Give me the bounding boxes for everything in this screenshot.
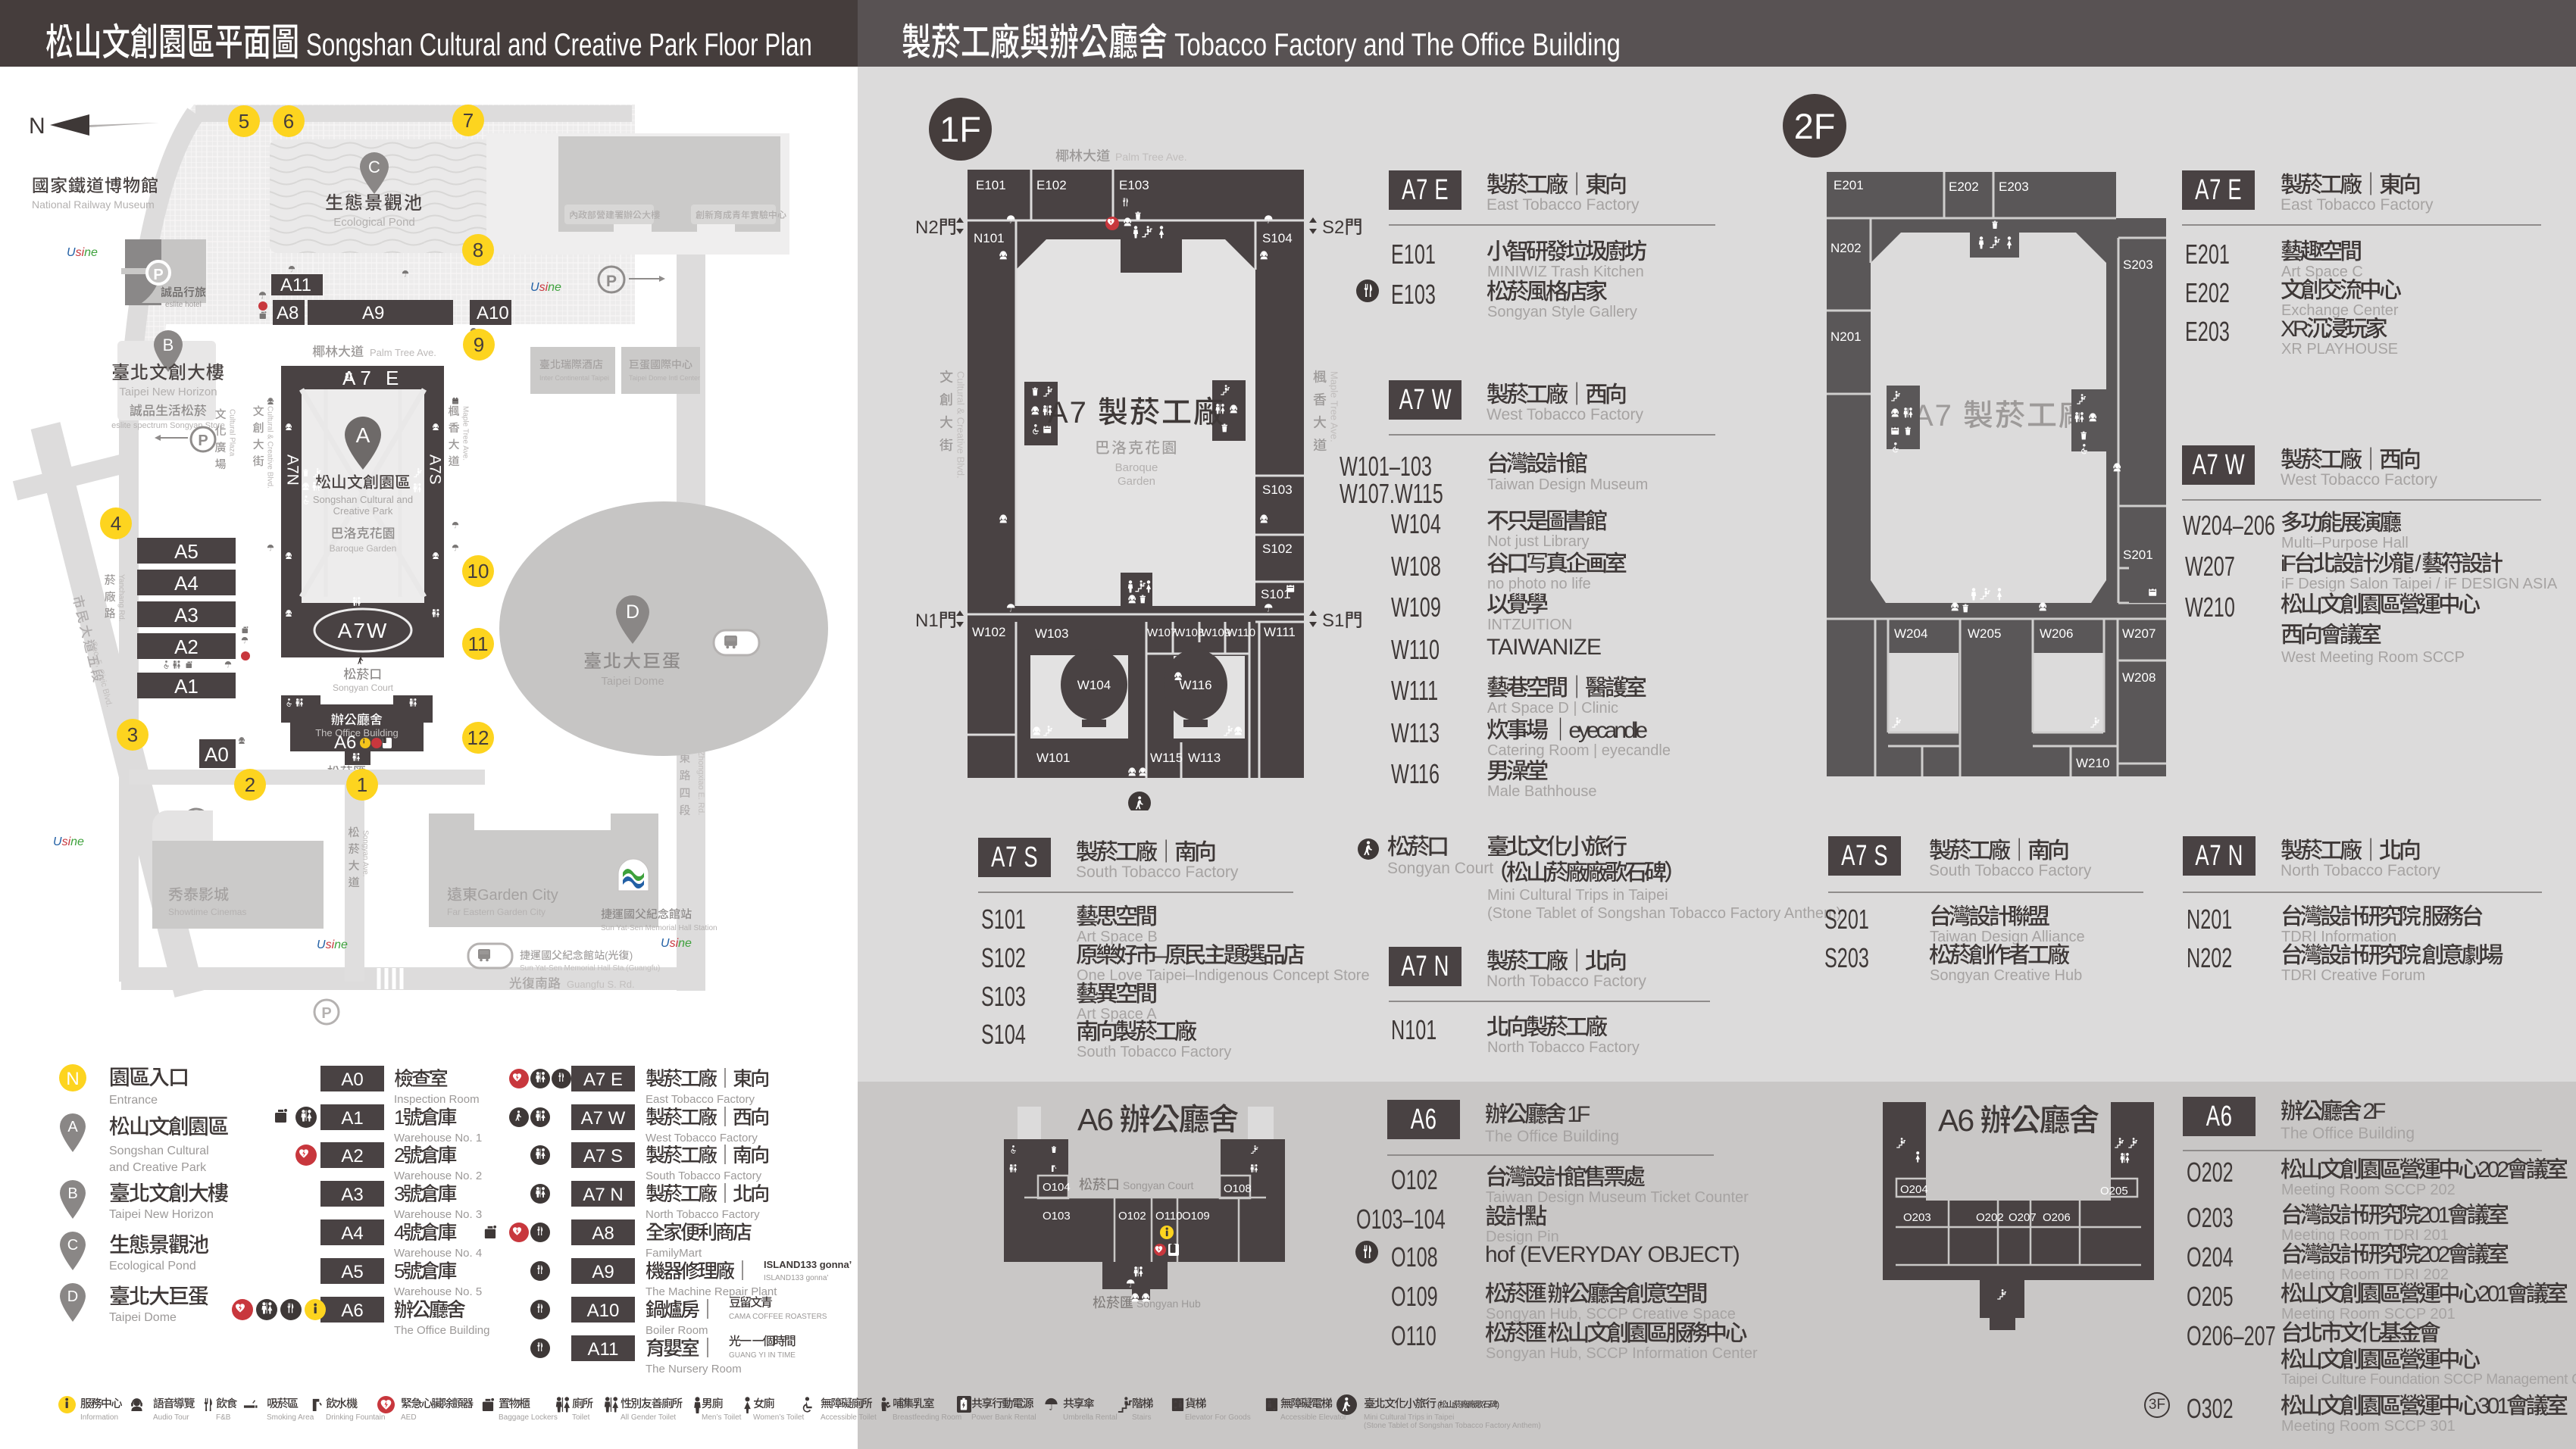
- svg-text:巨蛋國際中心: 巨蛋國際中心: [629, 358, 692, 370]
- svg-text:A11: A11: [588, 1339, 619, 1360]
- svg-text:8: 8: [473, 239, 483, 261]
- svg-text:A7 S: A7 S: [583, 1146, 623, 1166]
- svg-text:4: 4: [111, 512, 121, 535]
- svg-text:East Tobacco Factory: East Tobacco Factory: [646, 1093, 755, 1106]
- svg-text:創新育成青年實驗中心: 創新育成青年實驗中心: [696, 210, 787, 220]
- svg-text:W104: W104: [1077, 678, 1111, 692]
- svg-text:O203: O203: [1903, 1211, 1931, 1224]
- svg-text:W102: W102: [972, 625, 1005, 639]
- svg-text:遠東Garden City: 遠東Garden City: [447, 887, 558, 904]
- svg-text:A0: A0: [341, 1070, 363, 1090]
- svg-text:Warehouse No. 4: Warehouse No. 4: [394, 1247, 482, 1260]
- svg-text:A11: A11: [280, 275, 311, 295]
- svg-text:C: C: [368, 158, 380, 176]
- svg-text:椰林大道: 椰林大道: [1055, 148, 1110, 164]
- svg-text:A7S: A7S: [427, 454, 444, 485]
- svg-text:W111: W111: [1264, 625, 1296, 639]
- svg-text:1號倉庫: 1號倉庫: [394, 1106, 456, 1129]
- svg-text:11: 11: [468, 632, 489, 655]
- svg-text:楓香大道: 楓香大道: [1311, 367, 1327, 457]
- svg-text:P: P: [606, 273, 617, 290]
- svg-text:Ecological Pond: Ecological Pond: [333, 216, 415, 229]
- svg-text:檢查室: 檢查室: [394, 1067, 448, 1090]
- svg-text:Palm Tree Ave.: Palm Tree Ave.: [370, 347, 436, 358]
- svg-text:秀泰影城: 秀泰影城: [168, 887, 229, 904]
- svg-text:4號倉庫: 4號倉庫: [394, 1221, 456, 1244]
- svg-text:GUANG YI IN TIME: GUANG YI IN TIME: [729, 1351, 796, 1360]
- svg-text:D: D: [626, 601, 639, 623]
- svg-text:松菸口: 松菸口: [1079, 1177, 1120, 1192]
- svg-text:S101: S101: [1261, 587, 1291, 601]
- svg-text:捷運國父紀念館站(光復): 捷運國父紀念館站(光復): [520, 949, 633, 961]
- svg-text:Sun Yat-Sen Memorial Hall Stat: Sun Yat-Sen Memorial Hall Station: [601, 924, 717, 932]
- svg-text:Taipei New Horizon: Taipei New Horizon: [119, 386, 217, 398]
- svg-text:巴洛克花園: 巴洛克花園: [331, 526, 395, 541]
- svg-text:P: P: [321, 1005, 331, 1022]
- svg-text:Taipei Dome: Taipei Dome: [601, 675, 664, 688]
- svg-text:園區入口: 園區入口: [109, 1066, 188, 1089]
- svg-text:Sun Yat-Sen Memorial Hall Sta.: Sun Yat-Sen Memorial Hall Sta.(Guangfu): [520, 964, 660, 973]
- svg-text:W206: W206: [2040, 626, 2073, 641]
- svg-text:W207: W207: [2122, 626, 2156, 641]
- svg-text:Usine: Usine: [317, 938, 348, 951]
- svg-text:光一 一個時間: 光一 一個時間: [729, 1335, 795, 1348]
- svg-text:A9: A9: [362, 303, 384, 323]
- svg-text:E203: E203: [1999, 180, 2029, 194]
- svg-text:A1: A1: [174, 675, 199, 698]
- svg-text:W108: W108: [1174, 626, 1204, 639]
- svg-text:O110: O110: [1155, 1210, 1183, 1223]
- svg-text:Maple Tree Ave.: Maple Tree Ave.: [461, 406, 470, 461]
- svg-text:W205: W205: [1968, 626, 2001, 641]
- svg-text:W107: W107: [1147, 626, 1177, 639]
- svg-text:Songyan Ave.: Songyan Ave.: [361, 830, 370, 877]
- svg-text:CAMA COFFEE ROASTERS: CAMA COFFEE ROASTERS: [729, 1313, 827, 1321]
- svg-text:A2: A2: [341, 1146, 363, 1166]
- svg-text:機器修理廠｜: 機器修理廠｜: [646, 1260, 750, 1282]
- svg-text:O108: O108: [1224, 1182, 1252, 1195]
- svg-text:文化廣場: 文化廣場: [214, 406, 227, 473]
- svg-text:W110: W110: [1227, 626, 1255, 639]
- svg-text:Entrance: Entrance: [109, 1094, 158, 1107]
- svg-text:S1門: S1門: [1322, 611, 1362, 631]
- svg-text:國家鐵道博物館: 國家鐵道博物館: [32, 176, 159, 195]
- svg-text:W204: W204: [1894, 626, 1927, 641]
- svg-text:楓香大道: 楓香大道: [447, 403, 460, 470]
- svg-text:鍋爐房｜: 鍋爐房｜: [646, 1298, 715, 1321]
- svg-text:A7 製菸工廠: A7 製菸工廠: [1048, 396, 1225, 429]
- svg-text:and Creative Park: and Creative Park: [109, 1161, 207, 1174]
- svg-text:W210: W210: [2076, 756, 2109, 770]
- svg-text:Usine: Usine: [530, 281, 561, 294]
- svg-text:W113: W113: [1188, 751, 1221, 765]
- svg-text:Baroque: Baroque: [1115, 461, 1158, 474]
- svg-text:製菸工廠｜南向: 製菸工廠｜南向: [646, 1144, 768, 1166]
- svg-text:A4: A4: [174, 572, 199, 595]
- svg-text:松菸大道: 松菸大道: [347, 824, 360, 891]
- svg-text:A3: A3: [174, 604, 199, 626]
- svg-text:South Tobacco Factory: South Tobacco Factory: [646, 1170, 762, 1182]
- svg-text:O104: O104: [1043, 1181, 1071, 1194]
- svg-text:A0: A0: [205, 743, 229, 766]
- svg-text:A10: A10: [477, 303, 509, 323]
- svg-text:Usine: Usine: [53, 835, 84, 848]
- svg-text:臺北文創大樓: 臺北文創大樓: [111, 363, 225, 383]
- svg-text:S201: S201: [2123, 548, 2153, 562]
- svg-text:O103: O103: [1043, 1210, 1071, 1223]
- svg-text:生態景觀池: 生態景觀池: [325, 193, 424, 214]
- svg-text:Songyan Court: Songyan Court: [1123, 1179, 1194, 1191]
- svg-text:松菸匯: 松菸匯: [1093, 1295, 1133, 1310]
- svg-text:Usine: Usine: [661, 937, 692, 950]
- svg-text:Ecological Pond: Ecological Pond: [109, 1260, 196, 1273]
- svg-text:Creative Park: Creative Park: [333, 505, 393, 517]
- svg-text:文創大街: 文創大街: [938, 367, 953, 457]
- svg-text:松山文創園區: 松山文創園區: [109, 1115, 228, 1138]
- svg-text:光復南路: 光復南路: [509, 976, 561, 991]
- svg-text:Inspection Room: Inspection Room: [394, 1093, 480, 1106]
- svg-text:N202: N202: [1830, 241, 1862, 255]
- svg-text:W116: W116: [1179, 678, 1211, 692]
- svg-text:Warehouse No. 3: Warehouse No. 3: [394, 1208, 482, 1221]
- svg-text:N201: N201: [1830, 329, 1862, 344]
- svg-text:A: A: [356, 423, 370, 447]
- svg-text:誠品行旅: 誠品行旅: [161, 286, 206, 299]
- svg-text:Garden: Garden: [1118, 475, 1155, 488]
- svg-text:3: 3: [127, 723, 138, 746]
- svg-text:臺北大巨蛋: 臺北大巨蛋: [583, 651, 682, 672]
- svg-text:A6: A6: [334, 732, 356, 753]
- svg-text:S203: S203: [2123, 258, 2153, 272]
- svg-text:O102: O102: [1118, 1210, 1146, 1223]
- svg-text:C: C: [67, 1237, 78, 1254]
- svg-text:Warehouse No. 1: Warehouse No. 1: [394, 1132, 482, 1145]
- svg-text:全家便利商店: 全家便利商店: [646, 1221, 752, 1244]
- svg-text:12: 12: [467, 726, 489, 749]
- svg-text:E102: E102: [1036, 178, 1067, 192]
- svg-text:A5: A5: [174, 540, 199, 563]
- svg-text:A6: A6: [341, 1301, 363, 1321]
- svg-text:N: N: [66, 1069, 79, 1089]
- svg-text:O207: O207: [2009, 1211, 2037, 1224]
- svg-text:臺北文創大樓: 臺北文創大樓: [109, 1182, 228, 1205]
- svg-text:A3: A3: [341, 1185, 363, 1205]
- svg-text:eslite hotel: eslite hotel: [165, 301, 202, 309]
- svg-text:Cultural Plaza: Cultural Plaza: [228, 409, 236, 457]
- svg-text:Usine: Usine: [67, 246, 98, 259]
- svg-text:West Tobacco Factory: West Tobacco Factory: [646, 1132, 758, 1145]
- svg-text:1: 1: [357, 773, 367, 796]
- svg-text:巴洛克花園: 巴洛克花園: [1095, 440, 1178, 457]
- svg-text:S2門: S2門: [1322, 217, 1362, 238]
- svg-text:O206: O206: [2043, 1211, 2071, 1224]
- svg-text:菸廠路: 菸廠路: [103, 572, 116, 622]
- svg-text:捷運國父紀念館站: 捷運國父紀念館站: [601, 908, 692, 921]
- svg-text:W208: W208: [2122, 670, 2156, 685]
- svg-text:松菸口: 松菸口: [344, 667, 383, 682]
- svg-text:A7W: A7W: [338, 619, 389, 642]
- svg-text:Maple Tree Ave.: Maple Tree Ave.: [1329, 371, 1340, 442]
- svg-text:文創大街: 文創大街: [252, 403, 264, 470]
- svg-text:A6 辦公廳舍: A6 辦公廳舍: [1077, 1102, 1239, 1137]
- svg-text:Yanchang Rd.: Yanchang Rd.: [117, 574, 126, 622]
- svg-text:內政部營建署辦公大樓: 內政部營建署辦公大樓: [569, 210, 660, 220]
- svg-text:Taipei New Horizon: Taipei New Horizon: [109, 1208, 214, 1221]
- svg-text:松山文創園區: 松山文創園區: [315, 474, 411, 492]
- svg-text:辦公廳舍: 辦公廳舍: [394, 1298, 466, 1321]
- svg-text:2號倉庫: 2號倉庫: [394, 1144, 456, 1166]
- svg-text:S103: S103: [1262, 482, 1293, 497]
- svg-text:A10: A10: [587, 1301, 620, 1321]
- svg-text:Songshan Cultural: Songshan Cultural: [109, 1145, 209, 1157]
- svg-text:豆留文青: 豆留文青: [729, 1296, 772, 1310]
- svg-text:A7 E: A7 E: [583, 1070, 623, 1090]
- svg-text:A6 辦公廳舍: A6 辦公廳舍: [1938, 1103, 2099, 1138]
- svg-text:Guangfu S. Rd.: Guangfu S. Rd.: [567, 979, 635, 990]
- svg-text:製菸工廠｜西向: 製菸工廠｜西向: [646, 1106, 768, 1129]
- svg-text:Cultural & Creative Blvd.: Cultural & Creative Blvd.: [955, 371, 967, 479]
- svg-text:10: 10: [467, 560, 489, 582]
- svg-text:臺北瑞際酒店: 臺北瑞際酒店: [539, 358, 603, 370]
- svg-text:6: 6: [283, 110, 294, 133]
- svg-text:椰林大道: 椰林大道: [312, 345, 364, 359]
- svg-text:O205: O205: [2100, 1185, 2128, 1198]
- svg-text:5: 5: [239, 110, 249, 133]
- svg-text:D: D: [67, 1288, 78, 1305]
- svg-text:N101: N101: [974, 231, 1005, 245]
- svg-text:臺北大巨蛋: 臺北大巨蛋: [109, 1285, 208, 1308]
- svg-text:A1: A1: [341, 1108, 363, 1129]
- svg-text:N1門: N1門: [915, 611, 957, 631]
- svg-text:O109: O109: [1182, 1210, 1210, 1223]
- svg-text:W101: W101: [1036, 751, 1070, 765]
- svg-text:E101: E101: [976, 178, 1006, 192]
- svg-text:North Tobacco Factory: North Tobacco Factory: [646, 1208, 760, 1221]
- svg-text:O204: O204: [1900, 1183, 1928, 1196]
- svg-text:N2門: N2門: [915, 217, 957, 238]
- svg-text:The Office Building: The Office Building: [315, 727, 399, 739]
- svg-text:Cultural & Creative Blvd.: Cultural & Creative Blvd.: [266, 406, 274, 489]
- svg-text:5號倉庫: 5號倉庫: [394, 1260, 456, 1282]
- svg-text:A7 W: A7 W: [581, 1108, 626, 1129]
- svg-text:B: B: [163, 336, 174, 354]
- svg-text:P: P: [198, 433, 208, 449]
- svg-text:FamilyMart: FamilyMart: [646, 1247, 702, 1260]
- svg-text:Warehouse No. 2: Warehouse No. 2: [394, 1170, 482, 1182]
- svg-text:ISLAND133 gonna’: ISLAND133 gonna’: [764, 1274, 829, 1282]
- svg-text:S104: S104: [1262, 231, 1293, 245]
- svg-text:N: N: [29, 114, 45, 139]
- svg-text:The Nursery Room: The Nursery Room: [646, 1363, 742, 1376]
- svg-text:辦公廳舍: 辦公廳舍: [331, 713, 383, 727]
- svg-text:O202: O202: [1976, 1211, 2004, 1224]
- svg-text:製菸工廠｜東向: 製菸工廠｜東向: [646, 1067, 768, 1090]
- svg-text:A2: A2: [174, 635, 199, 658]
- svg-text:Warehouse No. 5: Warehouse No. 5: [394, 1285, 482, 1298]
- svg-text:Baroque Garden: Baroque Garden: [330, 543, 397, 554]
- svg-text:2: 2: [245, 773, 255, 796]
- svg-text:National Railway Museum: National Railway Museum: [32, 198, 155, 211]
- svg-text:A: A: [67, 1119, 78, 1135]
- svg-text:生態景觀池: 生態景觀池: [109, 1233, 209, 1257]
- svg-text:Taipei Dome: Taipei Dome: [109, 1311, 177, 1324]
- svg-text:P: P: [153, 267, 163, 283]
- svg-text:S102: S102: [1262, 542, 1293, 556]
- svg-text:Boiler Room: Boiler Room: [646, 1324, 708, 1337]
- svg-text:誠品生活松菸: 誠品生活松菸: [130, 404, 207, 418]
- svg-text:Palm Tree Ave.: Palm Tree Ave.: [1115, 151, 1187, 163]
- svg-text:製菸工廠｜北向: 製菸工廠｜北向: [646, 1182, 768, 1205]
- svg-text:Taipei Dome Intl Center: Taipei Dome Intl Center: [629, 374, 700, 382]
- svg-text:W103: W103: [1035, 626, 1068, 641]
- svg-text:A8: A8: [592, 1223, 614, 1244]
- svg-text:B: B: [67, 1185, 77, 1202]
- svg-text:A5: A5: [341, 1262, 363, 1282]
- svg-text:A4: A4: [341, 1223, 363, 1244]
- svg-text:Showtime Cinemas: Showtime Cinemas: [168, 907, 246, 917]
- svg-text:A8: A8: [277, 303, 299, 323]
- svg-text:E103: E103: [1119, 178, 1149, 192]
- svg-text:W115: W115: [1150, 751, 1183, 765]
- svg-text:E201: E201: [1834, 178, 1864, 192]
- svg-text:Songshan Cultural and: Songshan Cultural and: [313, 494, 413, 505]
- svg-text:7: 7: [463, 109, 474, 132]
- svg-text:Songyan Court: Songyan Court: [333, 682, 394, 693]
- svg-text:The Office Building: The Office Building: [394, 1324, 489, 1337]
- svg-text:Inter Continental Taipei: Inter Continental Taipei: [539, 374, 609, 382]
- svg-text:9: 9: [474, 333, 484, 356]
- svg-text:A7 N: A7 N: [583, 1185, 623, 1205]
- svg-text:3號倉庫: 3號倉庫: [394, 1182, 456, 1205]
- svg-text:A9: A9: [592, 1262, 614, 1282]
- svg-text:E202: E202: [1949, 180, 1979, 194]
- svg-text:育嬰室｜: 育嬰室｜: [646, 1337, 715, 1360]
- svg-text:A7 製菸工廠: A7 製菸工廠: [1913, 399, 2090, 433]
- svg-text:A7N: A7N: [284, 454, 302, 486]
- svg-text:Far Eastern Garden City: Far Eastern Garden City: [447, 907, 546, 917]
- svg-text:ISLAND133 gonna’: ISLAND133 gonna’: [764, 1259, 852, 1270]
